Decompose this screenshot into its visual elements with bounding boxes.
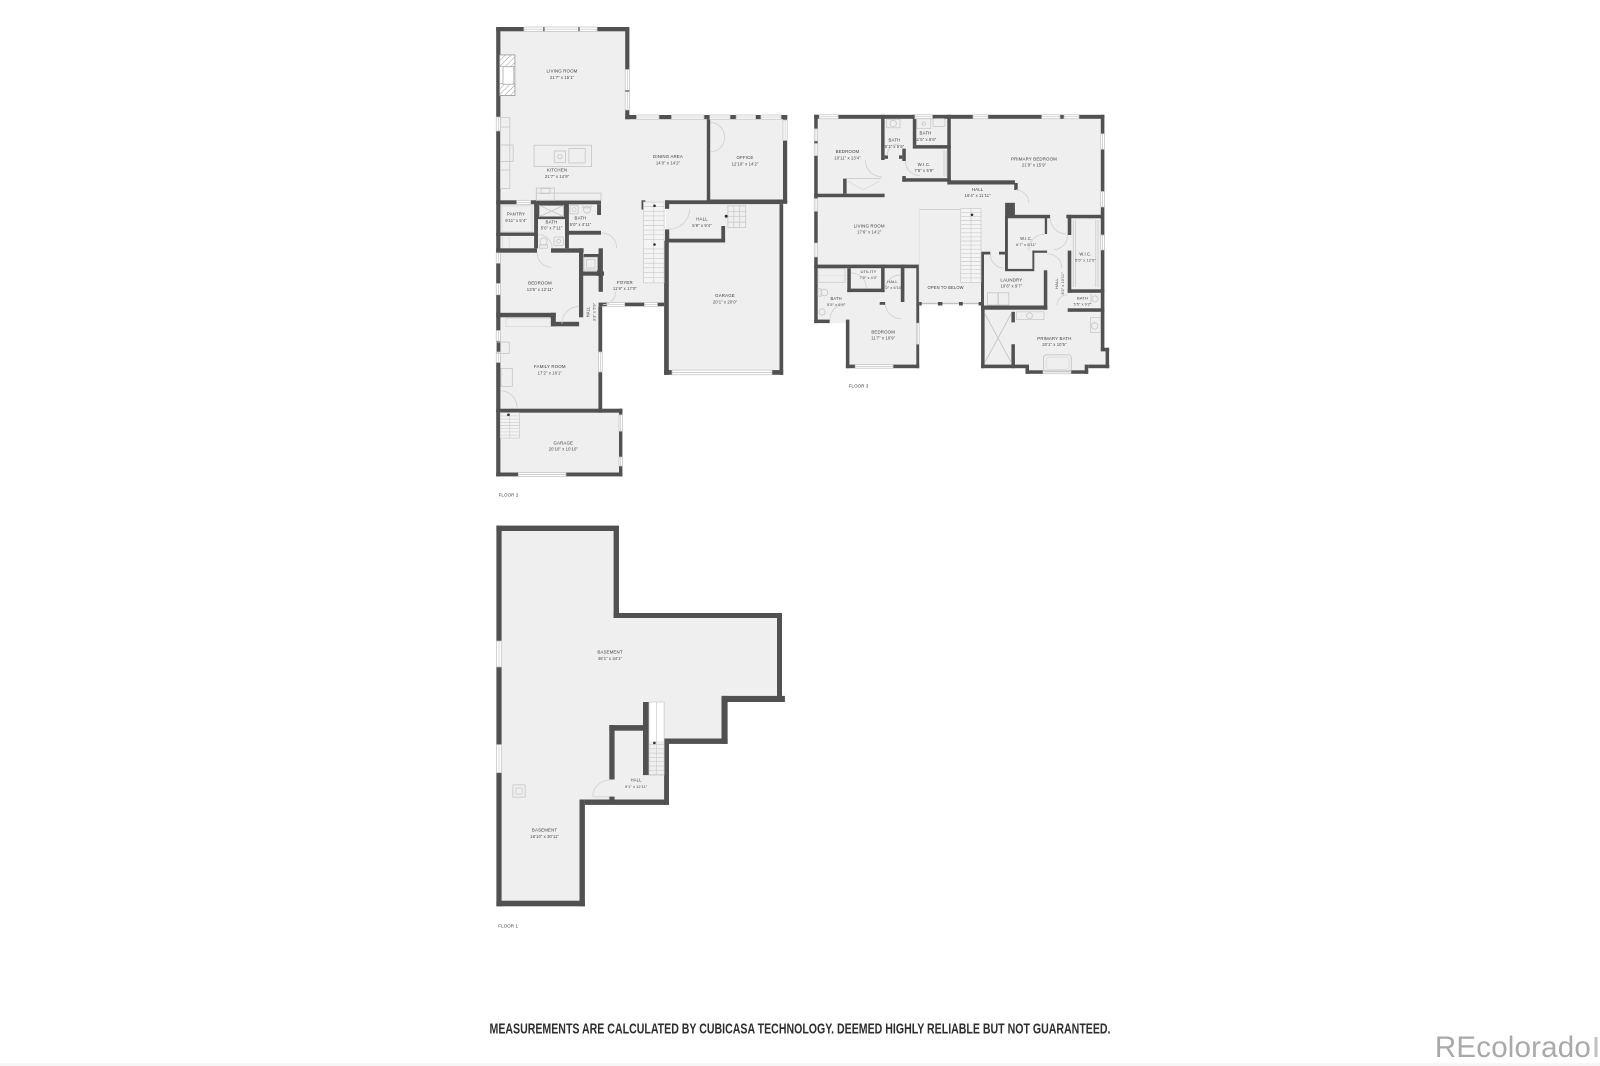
svg-text:DINING AREA: DINING AREA xyxy=(653,154,683,159)
svg-text:17’2” x 16’1”: 17’2” x 16’1” xyxy=(538,370,563,375)
svg-text:HALL: HALL xyxy=(586,306,591,317)
svg-text:BEDROOM: BEDROOM xyxy=(871,330,895,335)
svg-text:7’8” x 5’9”: 7’8” x 5’9” xyxy=(914,168,934,173)
svg-text:5’0” x 7’11”: 5’0” x 7’11” xyxy=(541,226,563,231)
svg-text:20’1” x 10’5”: 20’1” x 10’5” xyxy=(1042,342,1067,347)
svg-text:REcolorado: REcolorado xyxy=(1435,1031,1591,1064)
svg-text:14’0” x 14’2”: 14’0” x 14’2” xyxy=(656,160,681,165)
svg-text:MEASUREMENTS ARE CALCULATED BY: MEASUREMENTS ARE CALCULATED BY CUBICASA … xyxy=(490,1021,1111,1038)
svg-text:10’6” x 9’7”: 10’6” x 9’7” xyxy=(1000,284,1022,289)
svg-text:LIVING ROOM: LIVING ROOM xyxy=(547,69,578,74)
svg-text:W.I.C.: W.I.C. xyxy=(918,162,931,167)
svg-text:20’10” x 10’10”: 20’10” x 10’10” xyxy=(549,447,579,452)
svg-text:W.I.C.: W.I.C. xyxy=(1079,251,1091,256)
svg-text:BATH: BATH xyxy=(575,216,587,221)
svg-text:GARAGE: GARAGE xyxy=(715,293,735,298)
svg-text:HALL: HALL xyxy=(1054,278,1059,289)
svg-text:48’1” x 34’1”: 48’1” x 34’1” xyxy=(598,656,623,661)
svg-text:8’2” x 10’11”: 8’2” x 10’11” xyxy=(1061,272,1065,295)
svg-text:5’1” x 5’9”: 5’1” x 5’9” xyxy=(885,144,905,149)
svg-text:11’5” x 8’6”: 11’5” x 8’6” xyxy=(915,137,937,142)
svg-text:FAMILY ROOM: FAMILY ROOM xyxy=(534,364,566,369)
svg-text:3’2” x 6’10”: 3’2” x 6’10” xyxy=(883,286,904,290)
svg-text:PRIMARY BATH: PRIMARY BATH xyxy=(1037,336,1071,341)
svg-text:21’7” x 14’9”: 21’7” x 14’9” xyxy=(545,174,570,179)
svg-text:5’9” x 9’4”: 5’9” x 9’4” xyxy=(692,223,712,228)
svg-text:5’5” x 12’5”: 5’5” x 12’5” xyxy=(1075,258,1096,263)
svg-text:PRIMARY BEDROOM: PRIMARY BEDROOM xyxy=(1011,156,1057,161)
svg-text:BEDROOM: BEDROOM xyxy=(528,281,552,286)
svg-text:OPEN TO BELOW: OPEN TO BELOW xyxy=(928,285,964,290)
svg-text:UTILITY: UTILITY xyxy=(861,269,877,274)
svg-text:BATH: BATH xyxy=(830,296,841,301)
svg-text:9’11” x 5’4”: 9’11” x 5’4” xyxy=(505,218,527,223)
svg-text:7’9” x 4’0”: 7’9” x 4’0” xyxy=(860,276,878,280)
svg-text:FOYER: FOYER xyxy=(617,280,633,285)
svg-text:LIVING ROOM: LIVING ROOM xyxy=(854,224,885,229)
svg-text:17’6” x 14’2”: 17’6” x 14’2” xyxy=(857,230,882,235)
svg-text:BATH: BATH xyxy=(1077,295,1088,300)
svg-text:BATH: BATH xyxy=(889,138,901,143)
svg-text:5’0” x 4’11”: 5’0” x 4’11” xyxy=(570,222,592,227)
svg-text:5’5” x 6’4”: 5’5” x 6’4” xyxy=(827,302,846,307)
svg-text:HALL: HALL xyxy=(972,187,984,192)
svg-text:20’1” x 20’0”: 20’1” x 20’0” xyxy=(713,299,738,304)
svg-text:OFFICE: OFFICE xyxy=(737,155,754,160)
svg-text:FLOOR 2: FLOOR 2 xyxy=(499,492,519,497)
svg-text:GARAGE: GARAGE xyxy=(553,440,573,445)
svg-text:BATH: BATH xyxy=(546,220,558,225)
svg-text:21’7” x 15’1”: 21’7” x 15’1” xyxy=(550,75,575,80)
svg-text:5’5” x 9’2”: 5’5” x 9’2” xyxy=(1074,303,1092,307)
svg-text:HALL: HALL xyxy=(696,217,708,222)
svg-text:KITCHEN: KITCHEN xyxy=(547,168,567,173)
svg-text:W.I.C.: W.I.C. xyxy=(1020,236,1032,241)
svg-text:BEDROOM: BEDROOM xyxy=(836,149,860,154)
svg-text:11’7” x 10’9”: 11’7” x 10’9” xyxy=(871,336,896,341)
svg-text:18’10” x 30’11”: 18’10” x 30’11” xyxy=(530,834,559,839)
svg-text:21’9” x 15’9”: 21’9” x 15’9” xyxy=(1022,163,1047,168)
svg-text:12’10” x 14’2”: 12’10” x 14’2” xyxy=(732,161,759,166)
svg-text:PANTRY: PANTRY xyxy=(507,212,525,217)
svg-text:16’4” x 11’11”: 16’4” x 11’11” xyxy=(965,193,992,198)
svg-text:6’7” x 8’11”: 6’7” x 8’11” xyxy=(1016,242,1037,247)
svg-text:LAUNDRY: LAUNDRY xyxy=(1000,277,1022,282)
svg-text:11’9” x 17’0”: 11’9” x 17’0” xyxy=(613,286,638,291)
svg-text:9’1” x 12’11”: 9’1” x 12’11” xyxy=(625,784,648,789)
svg-text:10’11” x 13’4”: 10’11” x 13’4” xyxy=(834,155,861,160)
svg-text:BASEMENT: BASEMENT xyxy=(597,650,623,655)
svg-text:FLOOR 3: FLOOR 3 xyxy=(849,383,869,388)
svg-text:HALL: HALL xyxy=(631,778,642,783)
svg-text:FLOOR 1: FLOOR 1 xyxy=(498,924,518,929)
svg-text:HALL: HALL xyxy=(887,279,898,284)
svg-text:BASEMENT: BASEMENT xyxy=(532,828,558,833)
svg-text:3’3” x 5’9”: 3’3” x 5’9” xyxy=(592,302,597,321)
svg-text:13’5” x 12’11”: 13’5” x 12’11” xyxy=(527,287,554,292)
svg-text:BATH: BATH xyxy=(920,131,932,136)
